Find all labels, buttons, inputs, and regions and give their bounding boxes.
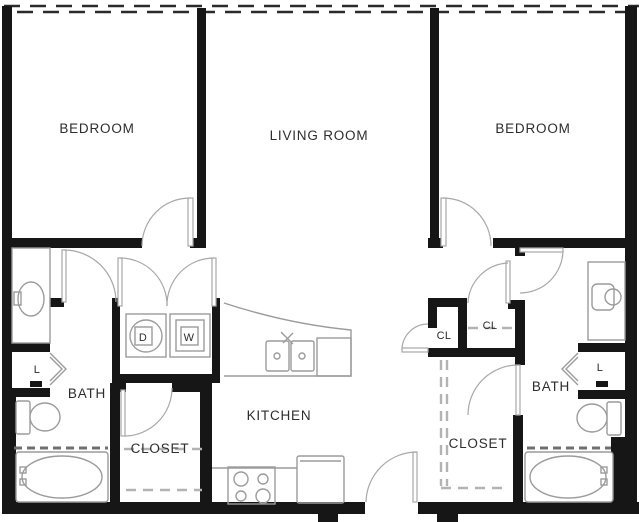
- room-label-kitchen: KITCHEN: [247, 408, 312, 423]
- vanity-right: [588, 262, 625, 340]
- floor-plan-canvas: BEDROOM LIVING ROOM BEDROOM BATH KITCHEN…: [0, 0, 639, 522]
- window-wall-dashes: [4, 6, 639, 12]
- room-label-bedroom-left: BEDROOM: [59, 121, 134, 136]
- room-label-cl-hall: CL: [483, 320, 498, 332]
- cl-hall-door: [468, 261, 510, 303]
- linen-left-bifold-door: [50, 353, 66, 385]
- wall-kitchen-west: [200, 374, 212, 502]
- wall-corridor-stub-1: [318, 514, 338, 522]
- walls: [2, 6, 639, 522]
- room-label-bath-right: BATH: [532, 379, 570, 394]
- vanity-left: [12, 248, 50, 343]
- wall-bedroom-left-south: [2, 238, 142, 248]
- wall-wd-closet-east: [212, 298, 220, 382]
- refrigerator: [297, 456, 344, 503]
- room-label-closet-left: CLOSET: [131, 441, 190, 456]
- tp-holder-right: [596, 381, 608, 387]
- toilet-right: [577, 402, 621, 435]
- room-label-bath-left: BATH: [68, 386, 106, 401]
- kitchen-faucet-icon: [281, 332, 293, 344]
- wd-closet-double-doors: [118, 258, 216, 306]
- room-label-closet-right: CLOSET: [449, 436, 508, 451]
- wall-left-lower-block: [2, 390, 16, 514]
- bathtub-left: [16, 452, 108, 502]
- wall-bedroom-left-east: [197, 8, 206, 248]
- kitchen-sink: [266, 332, 314, 371]
- room-label-linen-left: L: [34, 364, 41, 376]
- wall-linen-right-north: [578, 343, 625, 352]
- wall-bottom-right: [418, 502, 639, 514]
- closet-left-door: [121, 388, 172, 436]
- bathtub-right: [525, 452, 613, 502]
- wall-corridor-west: [515, 300, 525, 348]
- appliance-label-washer: W: [184, 332, 195, 344]
- fixtures: [12, 248, 625, 504]
- wall-wd-closet-west: [112, 298, 120, 382]
- closet-right-door: [468, 365, 520, 415]
- wall-linen-right-south: [578, 390, 625, 399]
- floor-plan: BEDROOM LIVING ROOM BEDROOM BATH KITCHEN…: [0, 0, 639, 522]
- wall-bottom-left: [2, 502, 365, 514]
- wall-linen-left-north: [2, 343, 50, 352]
- corridor-right-door: [520, 248, 563, 293]
- wall-living-east: [430, 8, 439, 248]
- tp-holder-left: [30, 381, 42, 387]
- wall-closet-left-north-b: [172, 383, 207, 392]
- room-label-linen-right: L: [597, 362, 604, 374]
- toilet-left: [16, 401, 60, 434]
- wall-corridor-west-mid: [515, 348, 525, 365]
- wall-cl-south: [428, 348, 525, 357]
- bedroom-right-door: [441, 198, 491, 246]
- kitchen-counter: [224, 303, 351, 376]
- wall-corridor-stub-2: [437, 514, 458, 522]
- bedroom-left-door: [142, 198, 193, 246]
- room-label-bedroom-right: BEDROOM: [495, 121, 570, 136]
- appliance-label-dryer: D: [139, 332, 147, 344]
- room-label-living-room: LIVING ROOM: [270, 128, 369, 143]
- wall-closet-right-east: [513, 415, 523, 505]
- stove: [228, 467, 275, 504]
- wall-cl-divider: [458, 300, 467, 348]
- wall-closet-left-west: [110, 383, 120, 505]
- wall-cl-pantry-west-upper: [428, 298, 437, 328]
- cl-pantry-door: [402, 324, 428, 352]
- wall-linen-left-south: [2, 388, 50, 397]
- room-label-cl-pantry: CL: [437, 330, 452, 342]
- wall-bedroom-right-south: [493, 238, 634, 248]
- dishwasher: [317, 338, 351, 376]
- entry-door: [366, 452, 417, 502]
- bath-left-door: [62, 250, 116, 302]
